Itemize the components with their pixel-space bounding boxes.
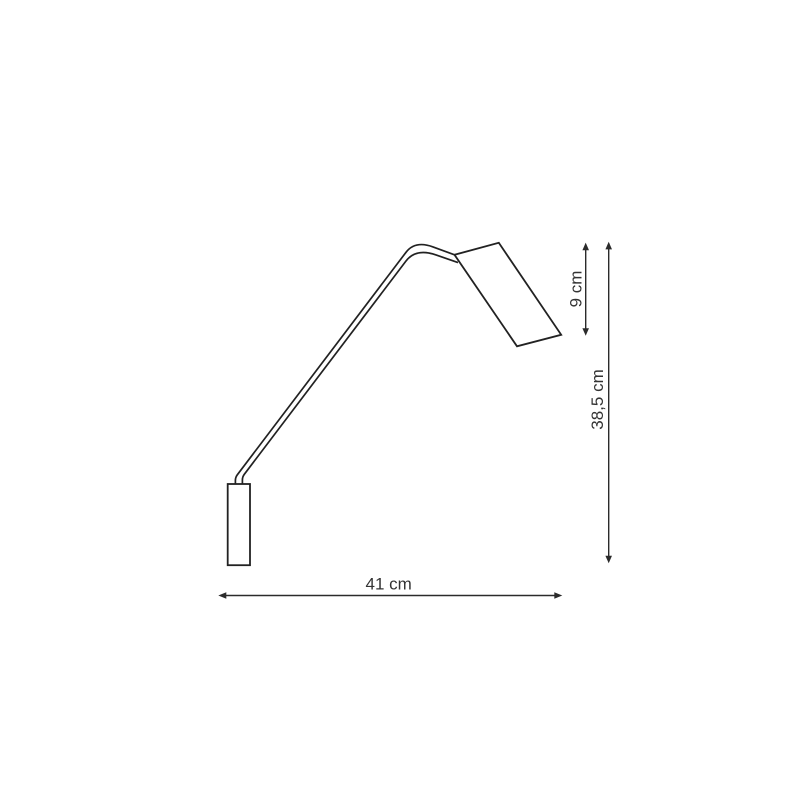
svg-text:38,5 cm: 38,5 cm	[588, 369, 607, 429]
svg-text:41 cm: 41 cm	[366, 575, 412, 594]
svg-text:9 cm: 9 cm	[567, 271, 586, 308]
